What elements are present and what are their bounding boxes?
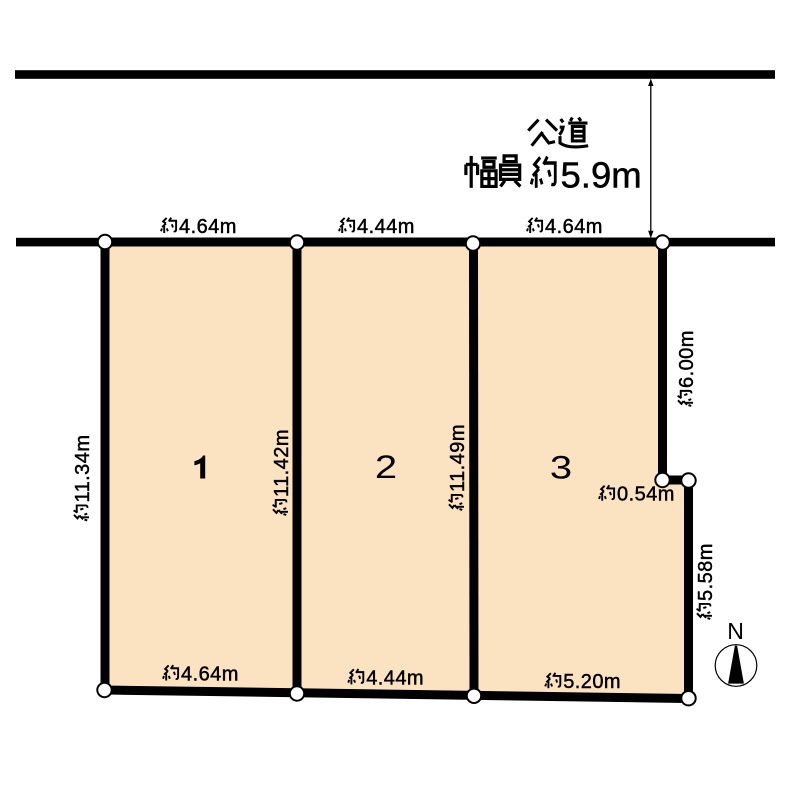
- svg-text:3: 3: [550, 449, 572, 485]
- svg-text:5.58m: 5.58m: [695, 543, 717, 601]
- svg-text:6.00m: 6.00m: [676, 330, 698, 388]
- svg-text:N: N: [727, 618, 744, 644]
- svg-text:4.64m: 4.64m: [179, 216, 237, 238]
- svg-text:11.42m: 11.42m: [271, 429, 293, 497]
- svg-text:2: 2: [375, 449, 397, 485]
- svg-text:4.44m: 4.44m: [366, 667, 424, 689]
- svg-text:5.20m: 5.20m: [563, 671, 621, 693]
- svg-text:11.34m: 11.34m: [72, 435, 94, 503]
- svg-text:4.44m: 4.44m: [357, 216, 415, 238]
- svg-text:5.9m: 5.9m: [561, 155, 642, 196]
- svg-text:4.64m: 4.64m: [181, 664, 239, 686]
- svg-text:4.64m: 4.64m: [545, 216, 603, 238]
- svg-text:11.49m: 11.49m: [447, 424, 469, 492]
